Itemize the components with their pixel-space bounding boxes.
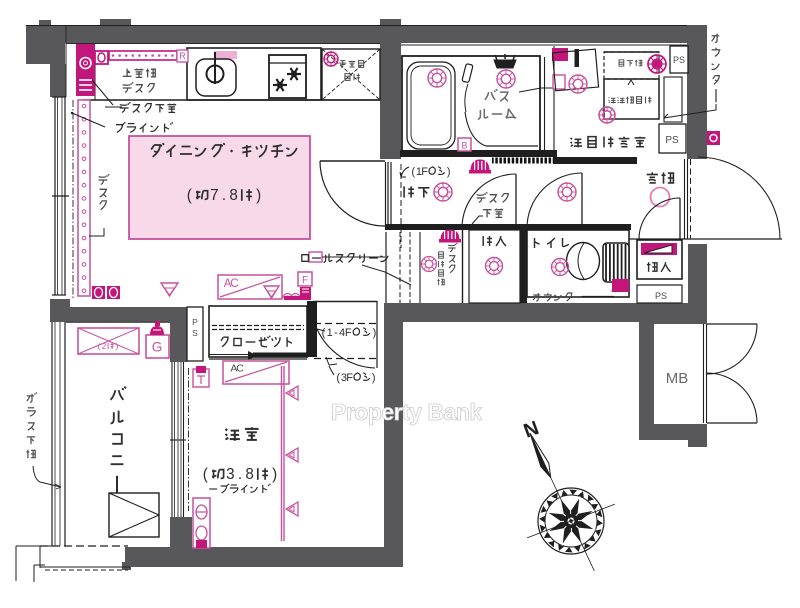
svg-text:(: ( (336, 372, 340, 384)
svg-text:PS: PS (655, 291, 667, 301)
svg-text:R: R (179, 51, 186, 61)
svg-text:(: ( (203, 466, 208, 483)
svg-text:(: ( (411, 166, 415, 178)
svg-text:F: F (421, 166, 428, 178)
svg-text:F: F (346, 372, 353, 384)
svg-text:-: - (334, 327, 338, 339)
svg-text:PS: PS (665, 135, 679, 146)
svg-text:P: P (192, 317, 198, 327)
svg-text:): ) (272, 466, 277, 483)
svg-text:MB: MB (666, 370, 689, 387)
svg-text:3: 3 (226, 466, 234, 483)
svg-text:): ) (372, 372, 376, 384)
svg-text:Property Bank: Property Bank (331, 399, 482, 425)
svg-text:): ) (447, 166, 451, 178)
svg-text:PS: PS (673, 55, 685, 65)
svg-text:8: 8 (229, 187, 237, 204)
svg-text:F: F (302, 275, 308, 286)
svg-text:B: B (461, 141, 467, 151)
svg-text:): ) (256, 187, 261, 204)
svg-text:): ) (116, 341, 119, 351)
svg-text:C: C (236, 363, 244, 375)
svg-text:.: . (222, 187, 226, 204)
svg-text:G: G (152, 340, 163, 355)
svg-text:(: ( (187, 187, 192, 204)
svg-text:): ) (373, 327, 377, 339)
svg-text:7: 7 (210, 187, 218, 204)
svg-text:C: C (230, 278, 238, 290)
svg-text:S: S (192, 328, 198, 338)
svg-text:2: 2 (102, 341, 107, 351)
svg-text:.: . (238, 466, 242, 483)
svg-text:(: ( (98, 341, 101, 351)
svg-text:F: F (345, 327, 352, 339)
svg-text:(: ( (322, 327, 326, 339)
svg-text:8: 8 (245, 466, 253, 483)
svg-text:1: 1 (327, 327, 333, 339)
